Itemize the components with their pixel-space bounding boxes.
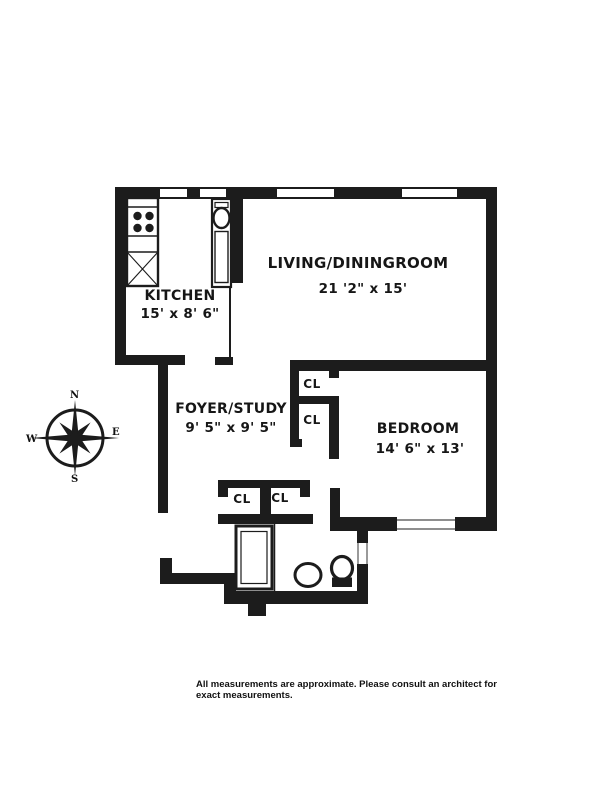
closet-label: CL [267, 491, 293, 505]
stove-icon [127, 198, 158, 286]
compass-north-label: N [70, 390, 79, 401]
room-label-living: LIVING/DININGROOM [258, 254, 458, 272]
compass-south-label: S [71, 474, 78, 485]
kitchen-sink-icon [212, 199, 231, 287]
toilet-icon [332, 557, 353, 588]
compass-rose-icon [31, 400, 119, 476]
closet-label: CL [229, 492, 255, 506]
room-dims-bedroom: 14' 6" x 13' [357, 441, 483, 457]
room-dims-foyer: 9' 5" x 9' 5" [170, 420, 292, 436]
bathroom-sink-icon [295, 564, 321, 587]
fixtures-layer [0, 0, 612, 792]
room-dims-living: 21 '2" x 15' [258, 281, 468, 297]
disclaimer-line-1: All measurements are approximate. Please… [196, 679, 506, 690]
room-label-bedroom: BEDROOM [357, 421, 479, 437]
compass-west-label: W [26, 434, 37, 445]
disclaimer-text: All measurements are approximate. Please… [196, 679, 506, 702]
floor-plan: LIVING/DININGROOM 21 '2" x 15' KITCHEN 1… [0, 0, 612, 792]
room-label-kitchen: KITCHEN [130, 288, 230, 304]
room-dims-kitchen: 15' x 8' 6" [125, 306, 235, 322]
closet-label: CL [300, 377, 324, 391]
closet-label: CL [300, 413, 324, 427]
compass-east-label: E [112, 427, 120, 438]
bathtub-icon [236, 526, 272, 589]
room-label-foyer: FOYER/STUDY [170, 401, 292, 417]
disclaimer-line-2: exact measurements. [196, 690, 506, 701]
